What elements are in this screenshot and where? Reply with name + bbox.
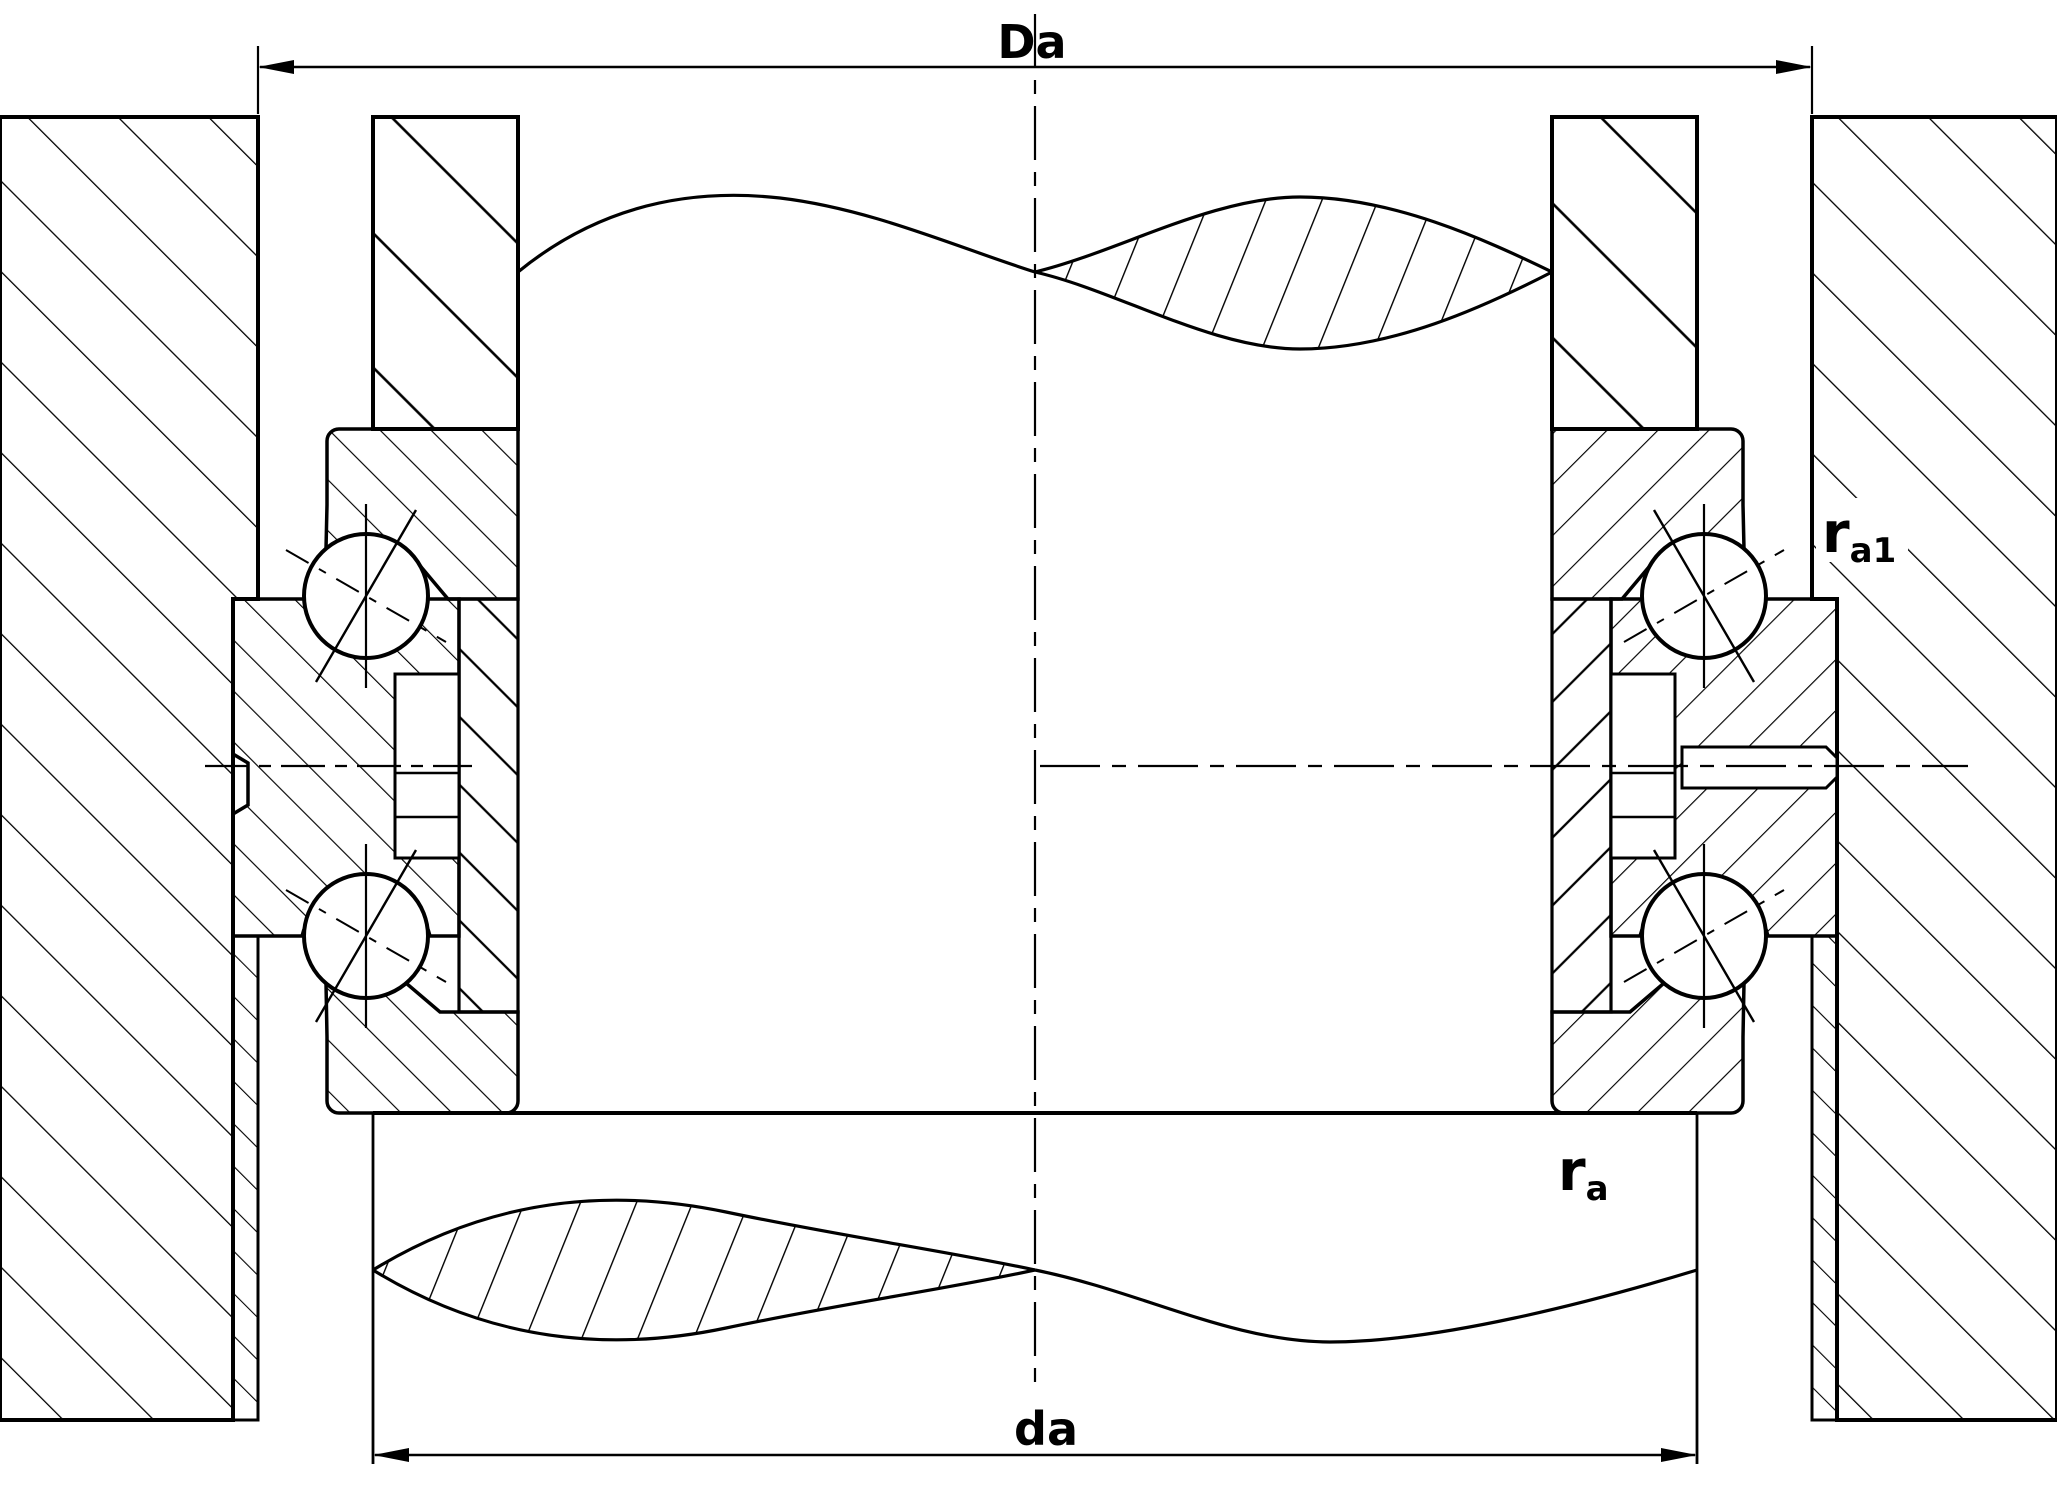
bearing-section-drawing: Da da ra1 ra — [0, 0, 2057, 1496]
sleeve-column-right — [1552, 599, 1611, 1012]
technical-drawing-page: Da da ra1 ra — [0, 0, 2057, 1496]
fillet-housing-base: r — [1822, 501, 1850, 566]
housing-strip-left — [233, 936, 258, 1420]
shaft-sleeve-right — [1552, 117, 1697, 429]
sleeve-column-left — [459, 599, 518, 1012]
bore-slot-right — [1682, 747, 1837, 788]
fillet-shaft-base: r — [1558, 1139, 1586, 1204]
housing-block-right — [1812, 117, 2057, 1420]
fillet-housing-sub: a1 — [1850, 531, 1897, 571]
label-ra: ra — [1558, 1139, 1609, 1209]
arrow-left-icon — [373, 1448, 409, 1462]
dimension-Da: Da — [258, 15, 1812, 114]
svg-text:ra: ra — [1558, 1139, 1609, 1209]
shaft-sleeve-left — [373, 117, 518, 429]
housing-block-left — [0, 117, 258, 1420]
fillet-shaft-sub: a — [1586, 1169, 1609, 1209]
dim-label-Da: Da — [997, 15, 1066, 69]
arrow-right-icon — [1661, 1448, 1697, 1462]
arrow-left-icon — [258, 60, 294, 74]
label-ra1: ra1 — [1816, 498, 1908, 571]
housing-strip-right — [1812, 936, 1837, 1420]
arrow-right-icon — [1776, 60, 1812, 74]
dim-label-da: da — [1014, 1402, 1078, 1456]
